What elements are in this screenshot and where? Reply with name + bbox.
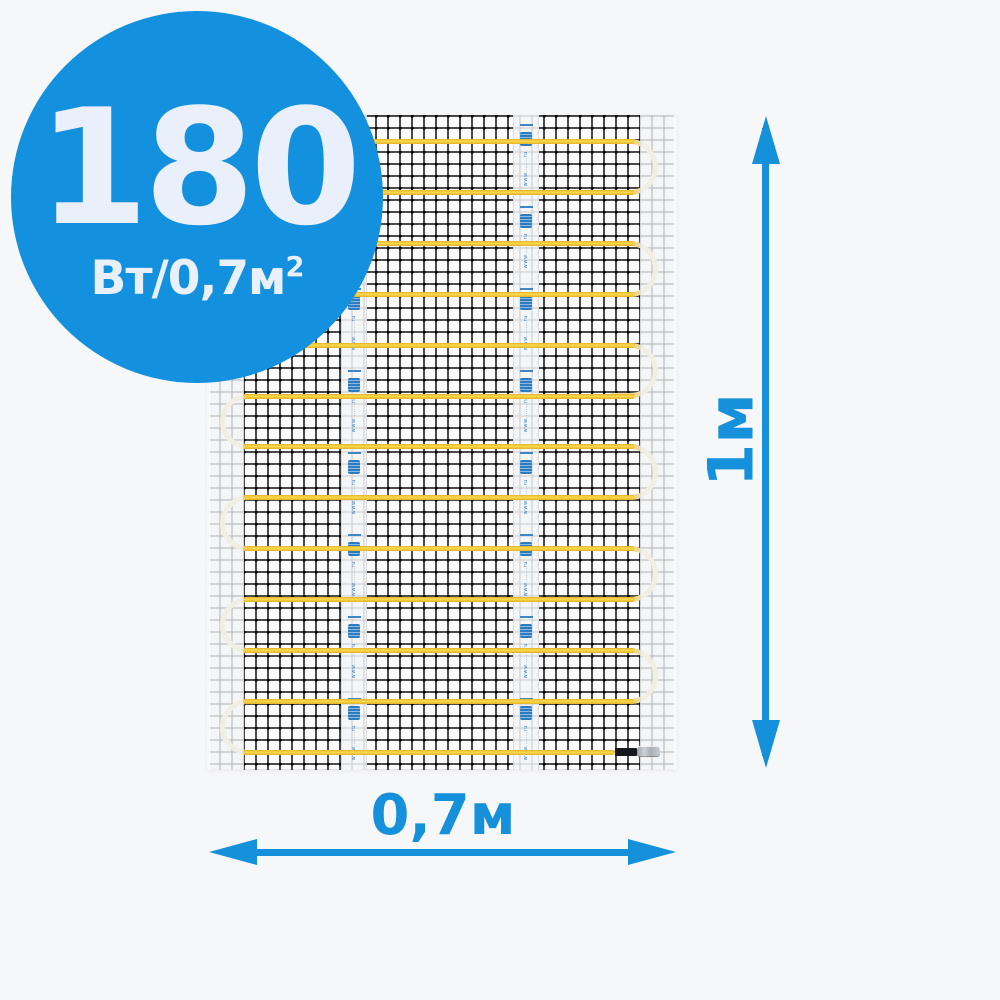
cable-run [243, 495, 635, 500]
power-unit: Вт/0,7м2 [91, 254, 304, 302]
arrowhead-down-icon [752, 720, 780, 768]
cable-end-sleeve [615, 748, 637, 756]
cable-run [243, 546, 635, 551]
width-dimension-label: 0,7м [371, 783, 516, 848]
arrowhead-left-icon [209, 839, 257, 865]
cable-end-cap [637, 746, 660, 757]
power-badge: 180 Вт/0,7м2 [11, 11, 383, 383]
product-image: www.......ruwww.......ruwww.......ruwww.… [0, 0, 1000, 1000]
arrowhead-right-icon [628, 839, 676, 865]
power-value: 180 [38, 92, 357, 244]
cable-run [243, 444, 635, 449]
cable-run [243, 394, 635, 399]
cable-run [243, 699, 635, 704]
height-dimension-label: 1м [695, 393, 768, 487]
cable-run [243, 597, 635, 602]
horizontal-dimension-arrow [240, 849, 645, 856]
cable-run [243, 648, 635, 653]
arrowhead-up-icon [752, 116, 780, 164]
cable-run [243, 750, 615, 755]
